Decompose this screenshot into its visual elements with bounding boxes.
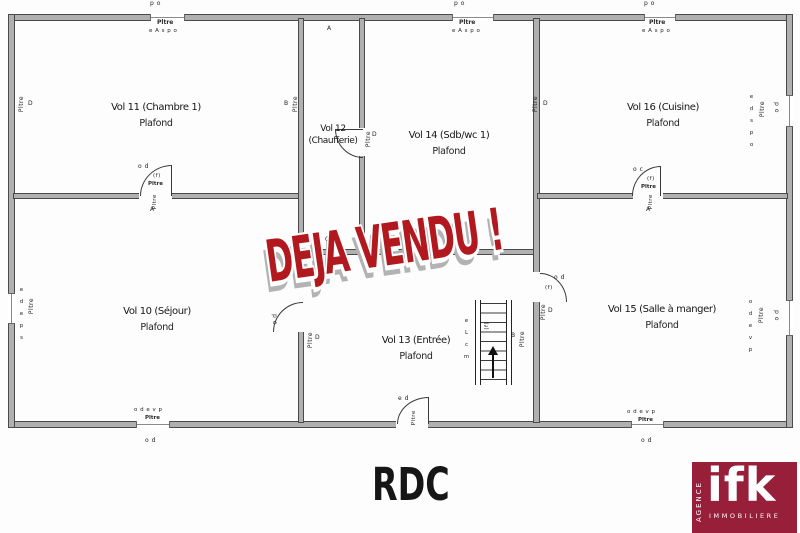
wall-annotation: o d [145,438,156,444]
agency-logo: AGENCE ifk IMMOBILIERE [692,462,797,533]
floor-plan: Vol 11 (Chambre 1) Plafond Vol 12 (Chauf… [0,0,800,533]
room-sublabel-vol15: Plafond [645,320,678,331]
wall-annotation: Pltre [649,20,665,26]
wall-annotation: C [325,237,330,243]
agency-logo-brand: ifk [707,460,776,511]
agency-logo-bottom-text: IMMOBILIERE [709,512,781,520]
wall [8,14,15,428]
wall [533,18,540,423]
wall-annotation: o d [774,102,780,113]
room-label-vol14: Vol 14 (Sdb/wc 1) [409,130,490,141]
room-label-vol12: Vol 12 [320,124,345,134]
wall-annotation: Pltre [145,416,160,422]
room-label-vol16: Vol 16 (Cuisine) [627,102,699,113]
wall-annotation: Pltre [148,182,163,188]
room-sublabel-vol10: Plafond [140,322,173,333]
stairs-rail [506,300,512,385]
wall-annotation: (f) [647,177,655,183]
room-sublabel-vol13: Plafond [399,351,432,362]
room-sublabel-vol16: Plafond [646,118,679,129]
wall-annotation: Pltre [638,418,653,424]
wall-annotation: Pltre [760,101,766,117]
wall-annotation: o d [774,310,780,321]
wall-annotation: D [548,308,553,314]
agency-logo-vertical-text: AGENCE [695,476,703,522]
wall [298,18,304,423]
room-label-vol15: Vol 15 (Salle à manger) [608,304,716,315]
window-opening [786,300,793,336]
room-label-vol13: Vol 13 (Entrée) [382,335,451,346]
stairs [475,300,512,385]
wall-annotation: p o [644,1,655,7]
wall-annotation: o d [138,164,149,170]
wall-annotation: e A s p o [452,29,480,35]
wall-annotation: e d e p s [18,287,24,341]
wall-annotation: (f) [153,174,161,180]
up-arrow-icon [492,354,494,378]
wall-annotation: Pltre [412,410,418,425]
wall-annotation: e A s p o [149,29,177,35]
wall-annotation: B [511,333,516,339]
up-arrow-icon [488,346,498,355]
room-sublabel-vol11: Plafond [139,118,172,129]
room-label-vol10: Vol 10 (Séjour) [123,306,191,317]
wall-annotation: A [327,26,332,32]
wall-annotation: p o [454,1,465,7]
wall-annotation: o d e v p [627,410,655,416]
wall-annotation: A [646,207,651,213]
wall-annotation: Pltre [308,332,314,348]
wall-annotation: A [150,207,155,213]
room-label-vol12-2: (Chaufferie) [308,136,357,146]
wall-annotation: Pltre [533,96,539,112]
wall-annotation: D [28,101,33,107]
wall-annotation: Pltre [19,96,25,112]
room-label-vol11: Vol 11 (Chambre 1) [111,102,201,113]
wall-annotation: B [284,101,289,107]
wall-annotation: e d s p o [748,94,754,148]
window-opening [136,421,170,428]
wall-annotation: D [543,101,548,107]
wall-annotation: (f) [545,286,553,292]
wall-annotation: D [315,335,320,341]
stairs-treads [481,303,506,382]
wall-annotation: o d e v p [134,408,162,414]
wall-annotation: e d [398,396,409,402]
wall-annotation: Pltre [29,298,35,314]
wall-annotation: p o [150,1,161,7]
floor-title: RDC [372,462,450,507]
wall-annotation: Pltre [293,96,299,112]
wall [298,249,540,255]
wall-annotation: o d [272,314,278,325]
wall-annotation: o d e v p [747,299,753,353]
wall-annotation: Pltre [157,20,173,26]
wall-annotation: Pltre [459,20,475,26]
room-sublabel-vol14: Plafond [432,146,465,157]
wall-annotation: Pltre [520,331,526,347]
wall-annotation: o d [641,438,652,444]
wall-annotation: e L c m [463,318,469,360]
wall-annotation: e A s p o [642,29,670,35]
wall-annotation: D [372,132,377,138]
wall [786,14,793,428]
wall-annotation: Pltre [541,304,547,320]
wall-annotation: (f) [485,322,491,330]
window-opening [8,293,15,324]
wall-annotation: Pltre [641,185,656,191]
wall-annotation: Pltre [759,307,765,323]
wall-annotation: o c [633,167,643,173]
wall-annotation: o d [554,275,565,281]
window-opening [786,95,793,127]
